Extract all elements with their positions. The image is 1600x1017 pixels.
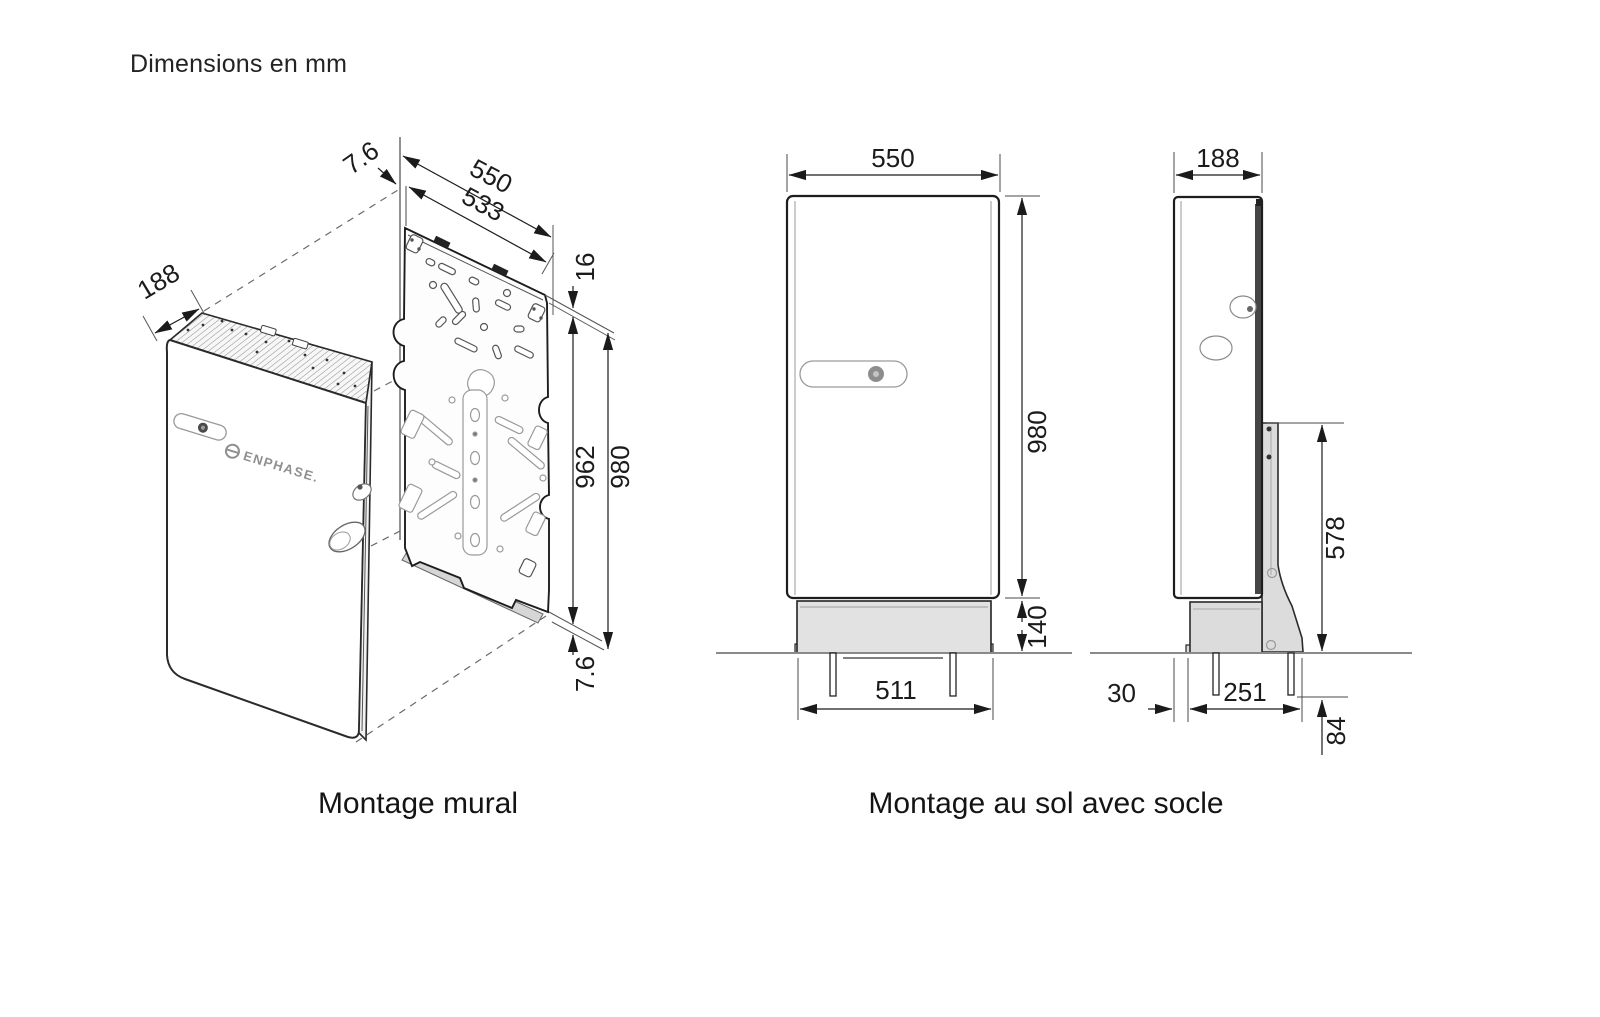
- dimension-drawing-page: Dimensions en mm: [0, 0, 1600, 1017]
- floor-mount-side-view: 188: [1090, 143, 1412, 755]
- dim-plate-standoff-bottom-label: 7.6: [570, 656, 600, 692]
- unit-front-outline: [787, 196, 999, 598]
- unit-side-outline: [1174, 197, 1262, 598]
- page-title: Dimensions en mm: [130, 50, 347, 79]
- base-socle-front: [795, 601, 993, 653]
- dim-side-depth-label: 188: [1196, 143, 1239, 173]
- dim-plate-standoff-top-label: 7.6: [337, 135, 384, 180]
- anchor-bolt-side-back: [1288, 653, 1294, 695]
- dim-top-clearance-label: 16: [570, 253, 600, 282]
- anchor-bolt-front-left: [830, 653, 836, 696]
- dim-front-setback-label: 30: [1107, 678, 1136, 708]
- dim-base-depth-label: 251: [1223, 677, 1266, 707]
- dim-anchor-depth-label: 84: [1321, 717, 1351, 746]
- anchor-bolt-side-front: [1213, 653, 1219, 695]
- floor-mount-front-view: 550: [716, 143, 1072, 720]
- dim-anchor-span-label: 511: [875, 675, 916, 705]
- dim-depth-iso-label: 188: [132, 257, 185, 305]
- dimension-drawing: ENPHASE.: [0, 0, 1600, 1017]
- base-socle-side: [1186, 602, 1262, 653]
- dim-front-height: [1005, 196, 1040, 598]
- battery-isometric: ENPHASE.: [167, 313, 374, 740]
- anchor-bolt-front-right: [950, 653, 956, 696]
- dim-overall-height-iso-label: 980: [605, 445, 635, 488]
- dim-front-width-label: 550: [871, 143, 914, 173]
- dim-plate-standoff-top: [378, 168, 396, 184]
- dim-bracket-height-label: 578: [1320, 516, 1350, 559]
- caption-wall-mount: Montage mural: [158, 787, 678, 821]
- dim-base-height-label: 140: [1022, 605, 1052, 648]
- dim-front-setback: [1148, 658, 1188, 722]
- wall-mount-figure: ENPHASE.: [132, 135, 635, 742]
- caption-floor-mount: Montage au sol avec socle: [786, 787, 1306, 821]
- dim-front-height-label: 980: [1022, 410, 1052, 453]
- back-panel-strip: [1255, 204, 1261, 594]
- mounting-plate: [394, 228, 550, 623]
- front-logo-pill: [800, 361, 907, 387]
- dim-plate-height-label: 962: [570, 445, 600, 488]
